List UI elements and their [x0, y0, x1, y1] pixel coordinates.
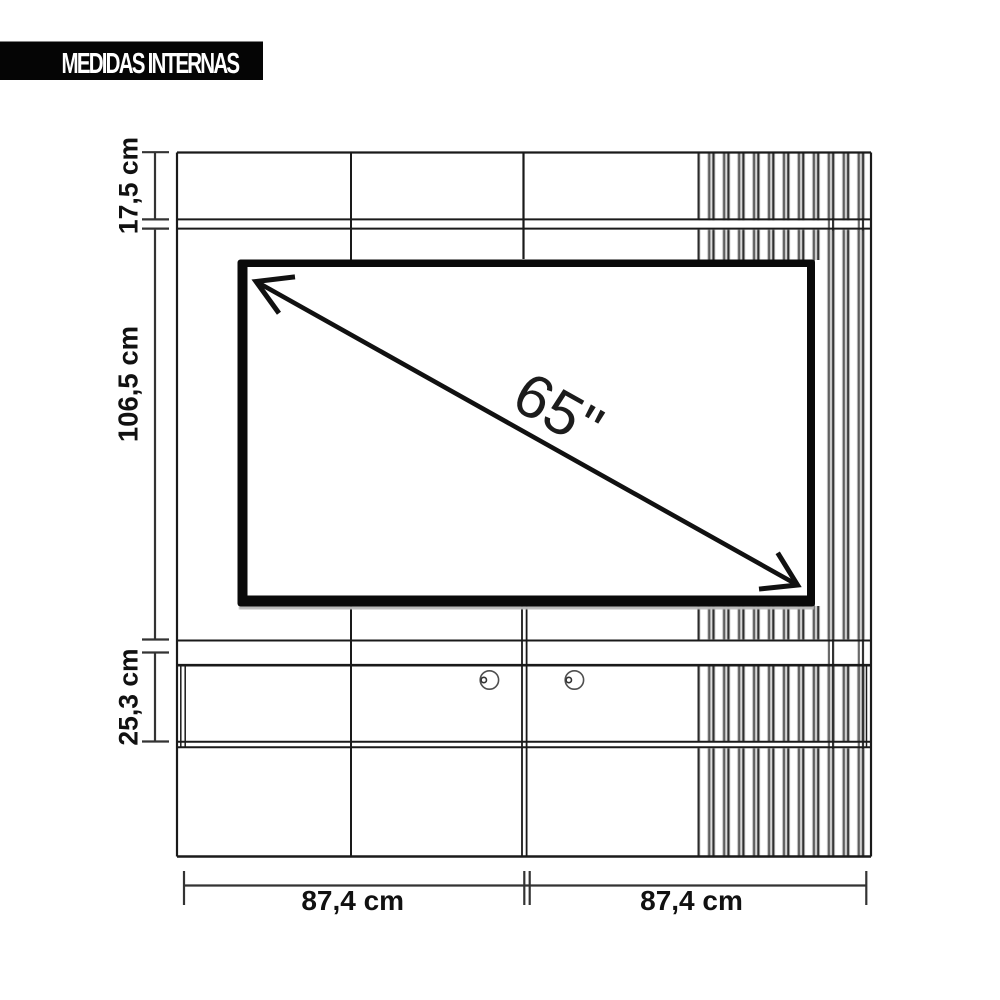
svg-text:106,5 cm: 106,5 cm [113, 326, 144, 442]
svg-text:87,4 cm: 87,4 cm [301, 885, 404, 916]
svg-text:87,4 cm: 87,4 cm [640, 885, 743, 916]
svg-text:25,3 cm: 25,3 cm [114, 648, 144, 745]
svg-text:MEDIDAS INTERNAS: MEDIDAS INTERNAS [62, 49, 241, 80]
svg-text:17,5 cm: 17,5 cm [114, 137, 144, 234]
